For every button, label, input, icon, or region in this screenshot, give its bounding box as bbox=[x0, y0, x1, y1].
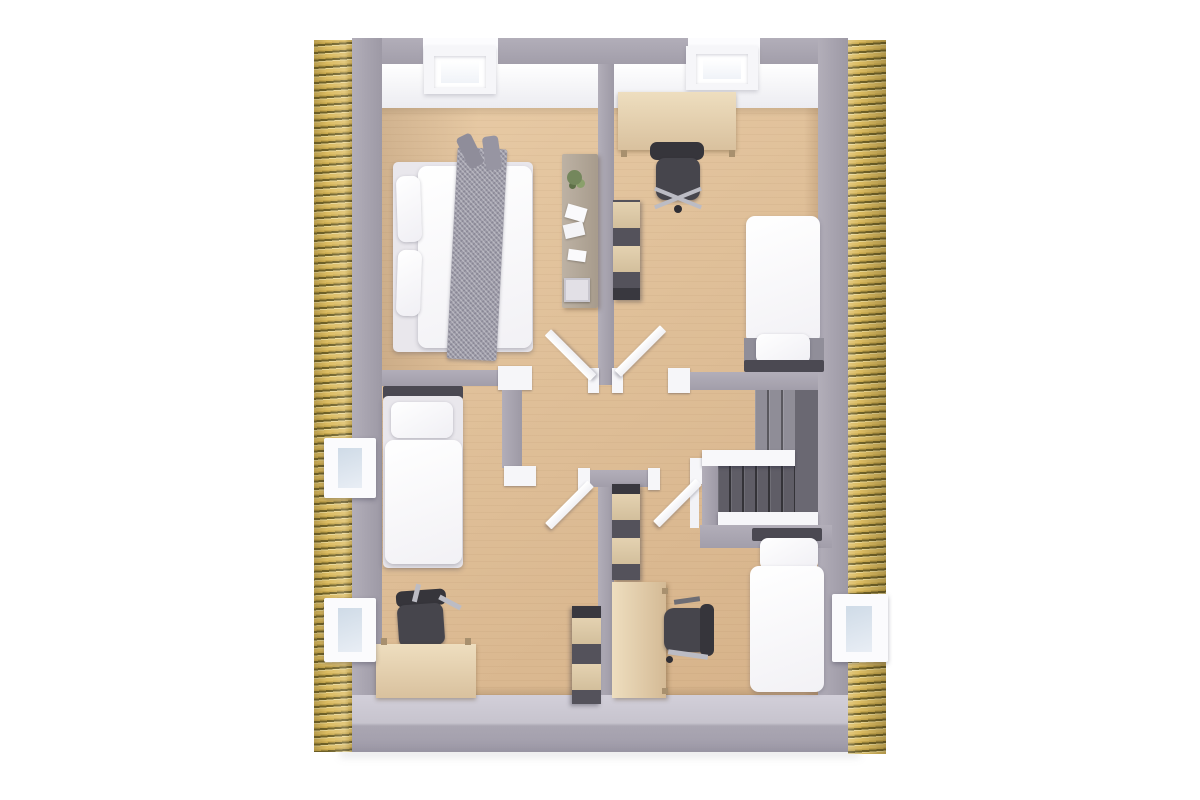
door-jamb-left-room-bottom bbox=[504, 466, 536, 486]
shelf-box-wood bbox=[572, 618, 601, 644]
stair-upper-flight bbox=[755, 390, 795, 452]
interior-wall-center-top bbox=[598, 64, 614, 385]
bed-bottom-right-duvet bbox=[750, 566, 824, 692]
stairwell-wall-left bbox=[702, 466, 718, 528]
door-jamb-left-room-top bbox=[498, 366, 532, 390]
shelf-top-dark bbox=[612, 484, 640, 494]
shelf-box-wood bbox=[612, 538, 640, 564]
shelf-box-wood bbox=[572, 664, 601, 690]
potted-plant bbox=[567, 170, 582, 185]
dormer-window-left-lower-glass bbox=[338, 608, 362, 652]
skylight-1-glass bbox=[441, 61, 479, 83]
shelf-box-wood bbox=[613, 202, 640, 228]
bed-bottom-left-pillow bbox=[391, 402, 453, 438]
door-jamb-right-room bbox=[668, 368, 690, 393]
double-bed-pillow-2 bbox=[396, 250, 422, 317]
dormer-window-left-upper-glass bbox=[338, 448, 362, 488]
bed-top-right-duvet bbox=[746, 216, 820, 344]
shelf-box-wood bbox=[612, 494, 640, 520]
chair-caster bbox=[674, 205, 682, 213]
interior-wall-left-horizontal bbox=[382, 370, 498, 386]
storage-box bbox=[564, 278, 590, 302]
floor-plan-render bbox=[0, 0, 1200, 800]
chair-caster bbox=[666, 656, 673, 663]
shelf-top-dark bbox=[572, 606, 601, 618]
desk-leg bbox=[621, 150, 627, 157]
exterior-wall-top-segment-2 bbox=[498, 38, 688, 64]
double-bed-pillow-1 bbox=[396, 176, 422, 243]
dormer-window-right-glass bbox=[846, 606, 872, 652]
desk-leg bbox=[381, 638, 387, 645]
desk-bottom-right-room bbox=[612, 582, 666, 698]
exterior-wall-top-segment-3 bbox=[760, 38, 818, 64]
shelf-box-wood bbox=[613, 246, 640, 272]
bed-top-right-headboard bbox=[744, 360, 824, 372]
skylight-2-glass bbox=[703, 59, 741, 79]
stair-landing bbox=[795, 390, 818, 528]
desk-leg bbox=[729, 150, 735, 157]
desk-bottom-left-room bbox=[376, 644, 476, 698]
interior-wall-hall-left bbox=[502, 390, 522, 468]
bed-bottom-left-duvet bbox=[385, 440, 462, 564]
stair-banister-top bbox=[702, 450, 795, 466]
desk-leg bbox=[662, 588, 668, 594]
building-ground-shadow bbox=[340, 748, 860, 758]
office-chair-backrest-br bbox=[700, 604, 714, 656]
office-chair-seat-bl bbox=[397, 602, 446, 647]
interior-wall-right-horizontal bbox=[690, 372, 818, 390]
shelf-base-dark bbox=[613, 288, 640, 300]
photo-3 bbox=[567, 249, 586, 262]
stair-banister-bottom bbox=[718, 512, 818, 525]
door-jamb-bottom-t-right bbox=[648, 468, 660, 490]
desk-leg bbox=[662, 688, 668, 694]
desk-leg bbox=[465, 638, 471, 645]
